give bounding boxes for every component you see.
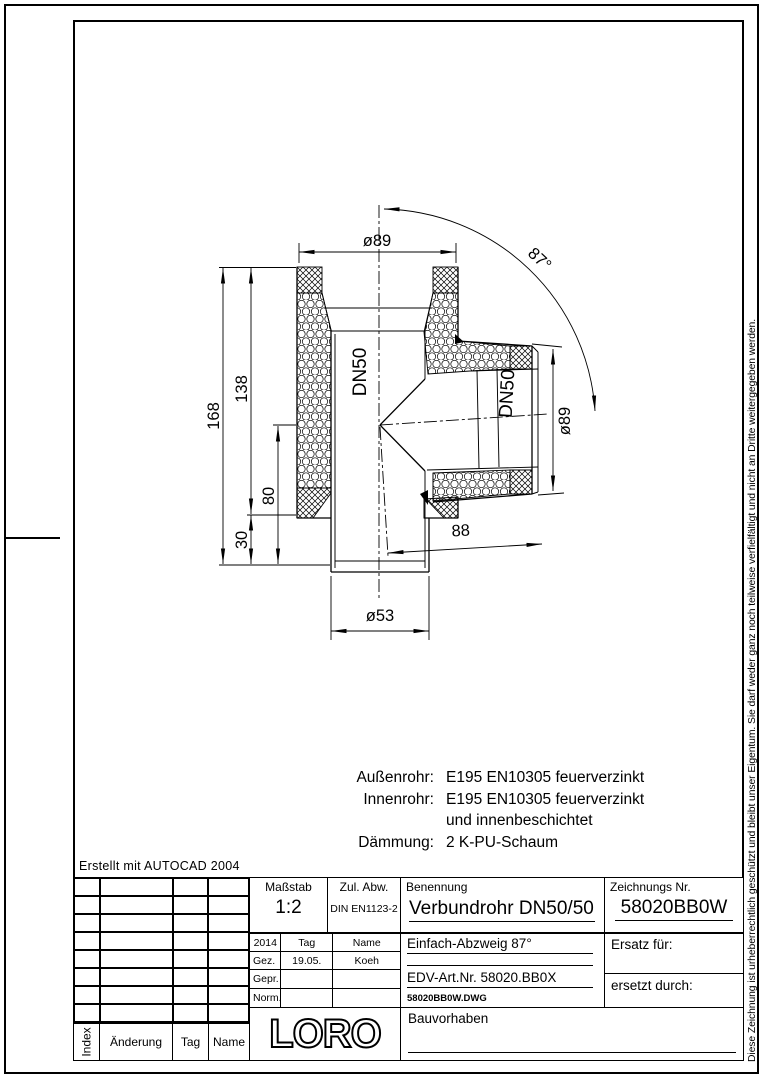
gepr-name-cell (332, 969, 402, 989)
note-row: Innenrohr: E195 EN10305 feuerverzinkt (318, 789, 668, 811)
gepr-label: Gepr. (253, 973, 279, 985)
revision-cell (208, 968, 250, 986)
tolerance-value: DIN EN1123-2 (328, 903, 401, 915)
note-label (318, 810, 434, 832)
revision-index-label: Index (80, 1027, 94, 1056)
revision-cell (208, 1004, 250, 1022)
note-value: E195 EN10305 feuerverzinkt (446, 767, 644, 789)
note-row: Außenrohr: E195 EN10305 feuerverzinkt (318, 767, 668, 789)
revision-cell (74, 986, 100, 1004)
year-value: 2014 (254, 937, 277, 949)
revision-cell (173, 968, 208, 986)
ersetzt-label: ersetzt durch: (605, 974, 743, 997)
dimension-labels: ø89 87° 168 138 80 30 ø89 88 ø53 DN50 DN… (205, 232, 574, 625)
dwg-filename: 58020BB0W.DWG (407, 993, 487, 1004)
revision-cell (173, 914, 208, 932)
dim-dia-branch: ø89 (556, 407, 574, 435)
revision-header-index: Index (73, 1023, 100, 1061)
drawing-number-value: 58020BB0W (615, 897, 733, 921)
gez-date: 19.05. (292, 955, 321, 967)
created-with-note: Erstellt mit AUTOCAD 2004 (79, 859, 240, 873)
designation-label: Benennung (401, 878, 605, 894)
center-lines (379, 205, 548, 600)
copyright-note: Diese Zeichnung ist urheberrechtlich ges… (747, 272, 758, 1062)
revision-cell (74, 914, 100, 932)
revision-cell (208, 986, 250, 1004)
note-value: 2 K-PU-Schaum (446, 832, 558, 854)
revision-cell (173, 878, 208, 896)
loro-logo: LORO (257, 1013, 393, 1055)
subtitle-value: Einfach-Abzweig 87° (407, 936, 593, 954)
drawing-number-cell: Zeichnungs Nr. 58020BB0W (604, 877, 744, 933)
revision-cell (74, 968, 100, 986)
gez-cell: Gez. (249, 951, 282, 971)
technical-drawing: ø89 87° 168 138 80 30 ø89 88 ø53 DN50 DN… (73, 20, 745, 866)
bauvorhaben-label: Bauvorhaben (401, 1008, 743, 1029)
note-value: E195 EN10305 feuerverzinkt (446, 789, 644, 811)
revision-cell (208, 950, 250, 968)
ersatz-cell: Ersatz für: (604, 933, 744, 975)
revision-cell (173, 950, 208, 968)
gez-label: Gez. (253, 955, 275, 967)
drawing-sheet: ø89 87° 168 138 80 30 ø89 88 ø53 DN50 DN… (0, 0, 765, 1080)
tag-header-cell: Tag (280, 933, 334, 952)
year-cell: 2014 (249, 933, 282, 952)
dim-height-total: 168 (205, 402, 223, 430)
designation-cell: Benennung Verbundrohr DN50/50 (400, 877, 606, 933)
revision-header-aenderung: Änderung (99, 1023, 174, 1061)
revision-name-label: Name (213, 1035, 245, 1049)
designation-value: Verbundrohr DN50/50 (409, 898, 595, 922)
edv-number: EDV-Art.Nr. 58020.BB0X (407, 970, 593, 988)
dim-angle: 87° (524, 244, 555, 274)
revision-cell (208, 896, 250, 914)
gez-name: Koeh (354, 955, 379, 967)
norm-name-cell (332, 988, 402, 1009)
revision-cell (100, 914, 173, 932)
note-row: Dämmung: 2 K-PU-Schaum (318, 832, 668, 854)
revision-cell (74, 932, 100, 950)
revision-cell (74, 896, 100, 914)
note-label: Dämmung: (318, 832, 434, 854)
revision-cell (100, 950, 173, 968)
bauvorhaben-line (408, 1052, 736, 1053)
gez-date-cell: 19.05. (280, 951, 334, 971)
revision-cell (74, 950, 100, 968)
dim-dia-bottom: ø53 (366, 607, 394, 625)
bauvorhaben-cell: Bauvorhaben (400, 1007, 744, 1061)
material-notes: Außenrohr: E195 EN10305 feuerverzinkt In… (318, 767, 668, 853)
revision-cell (100, 878, 173, 896)
subtitle-blank-line (407, 965, 593, 966)
note-label: Außenrohr: (318, 767, 434, 789)
scale-label: Maßstab (250, 878, 327, 894)
revision-cell (173, 1004, 208, 1022)
norm-date-cell (280, 988, 334, 1009)
label-dn-branch: DN50 (496, 369, 520, 419)
revision-cell (208, 878, 250, 896)
drawing-number-label: Zeichnungs Nr. (605, 878, 743, 894)
revision-cell (100, 932, 173, 950)
revision-cell (100, 896, 173, 914)
tolerance-cell: Zul. Abw. DIN EN1123-2 (327, 877, 402, 933)
dim-height-branch: 80 (260, 487, 278, 505)
ersatz-label: Ersatz für: (605, 934, 743, 955)
note-label: Innenrohr: (318, 789, 434, 811)
norm-cell: Norm. (249, 988, 282, 1009)
revision-header-name: Name (208, 1023, 251, 1061)
gepr-date-cell (280, 969, 334, 989)
dim-dia-top: ø89 (363, 232, 391, 250)
revision-cell (100, 986, 173, 1004)
revision-tag-label: Tag (181, 1035, 200, 1049)
note-row: und innenbeschichtet (318, 810, 668, 832)
dim-height-bottom: 30 (233, 531, 251, 549)
fold-mark (5, 537, 60, 539)
loro-logo-text: LORO (269, 1013, 381, 1055)
dimension-lines (219, 209, 595, 640)
gepr-cell: Gepr. (249, 969, 282, 989)
revision-header-tag: Tag (172, 1023, 209, 1061)
revision-cell (173, 932, 208, 950)
pipe-outline (297, 267, 532, 572)
gez-name-cell: Koeh (332, 951, 402, 971)
note-value: und innenbeschichtet (446, 810, 593, 832)
name-header-cell: Name (332, 933, 402, 952)
dim-height-upper: 138 (233, 375, 251, 403)
logo-cell: LORO (249, 1007, 402, 1061)
revision-cell (208, 932, 250, 950)
revision-cell (208, 914, 250, 932)
revision-cell (74, 1004, 100, 1022)
dim-branch-length: 88 (451, 521, 470, 540)
name-header-label: Name (353, 937, 381, 949)
ersetzt-cell: ersetzt durch: (604, 973, 744, 1009)
revision-cell (100, 1004, 173, 1022)
tolerance-label: Zul. Abw. (328, 878, 401, 894)
label-dn-main: DN50 (350, 348, 371, 397)
revision-cell (173, 986, 208, 1004)
subtitle-cell: Einfach-Abzweig 87° EDV-Art.Nr. 58020.BB… (400, 933, 606, 1009)
norm-label: Norm. (253, 992, 282, 1004)
revision-table (73, 877, 249, 1023)
revision-cell (74, 878, 100, 896)
revision-aenderung-label: Änderung (110, 1035, 162, 1049)
scale-cell: Maßstab 1:2 (249, 877, 328, 933)
tag-header-label: Tag (298, 937, 315, 949)
scale-value: 1:2 (250, 897, 327, 919)
revision-cell (173, 896, 208, 914)
revision-cell (100, 968, 173, 986)
